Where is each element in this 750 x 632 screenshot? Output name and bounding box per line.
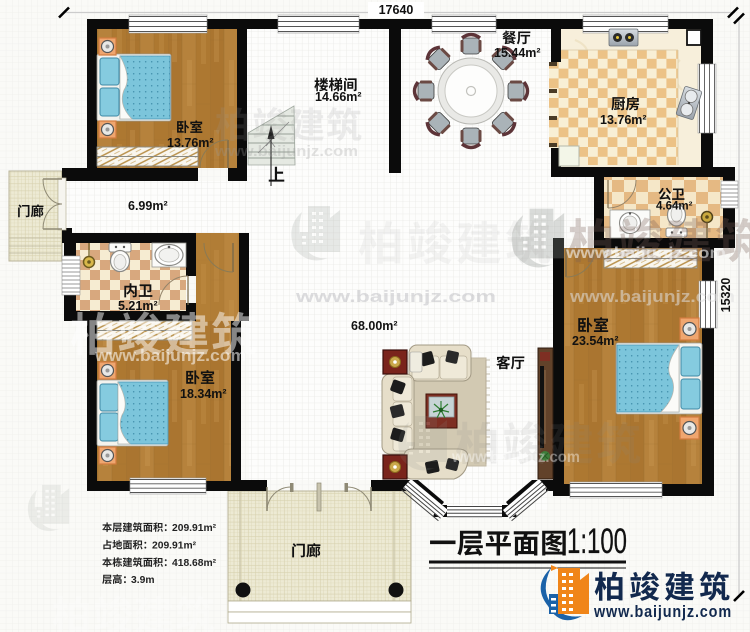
svg-text:15320: 15320 <box>719 278 733 313</box>
svg-text:www.baijunjz.com: www.baijunjz.com <box>565 245 726 262</box>
svg-text:209.91m²: 209.91m² <box>172 523 217 534</box>
svg-text:15.44m²: 15.44m² <box>494 46 541 60</box>
svg-text:www.baijunjz.com: www.baijunjz.com <box>569 287 735 306</box>
svg-text:14.66m²: 14.66m² <box>315 90 362 104</box>
svg-text:68.00m²: 68.00m² <box>351 319 398 333</box>
svg-text:www.baijunjz.com: www.baijunjz.com <box>593 602 732 621</box>
svg-text:1:100: 1:100 <box>567 522 627 561</box>
svg-text:418.68m²: 418.68m² <box>172 558 217 569</box>
svg-text:209.91m²: 209.91m² <box>152 541 197 552</box>
svg-text:www.baijunjz.com: www.baijunjz.com <box>295 287 496 306</box>
svg-text:www.baijunjz.com: www.baijunjz.com <box>214 143 358 160</box>
svg-text:17640: 17640 <box>379 3 414 17</box>
svg-text:www.baijunjz.com: www.baijunjz.com <box>94 346 246 365</box>
svg-text:23.54m²: 23.54m² <box>572 334 619 348</box>
svg-text:13.76m²: 13.76m² <box>167 136 214 150</box>
svg-text:18.34m²: 18.34m² <box>180 387 227 401</box>
svg-text:www.baijunjz.com: www.baijunjz.com <box>451 449 580 466</box>
svg-text:4.64m²: 4.64m² <box>656 201 693 213</box>
svg-text:5.21m²: 5.21m² <box>118 299 158 313</box>
svg-text:3.9m: 3.9m <box>131 575 154 586</box>
svg-text:13.76m²: 13.76m² <box>600 113 647 127</box>
svg-text:6.99m²: 6.99m² <box>128 199 168 213</box>
